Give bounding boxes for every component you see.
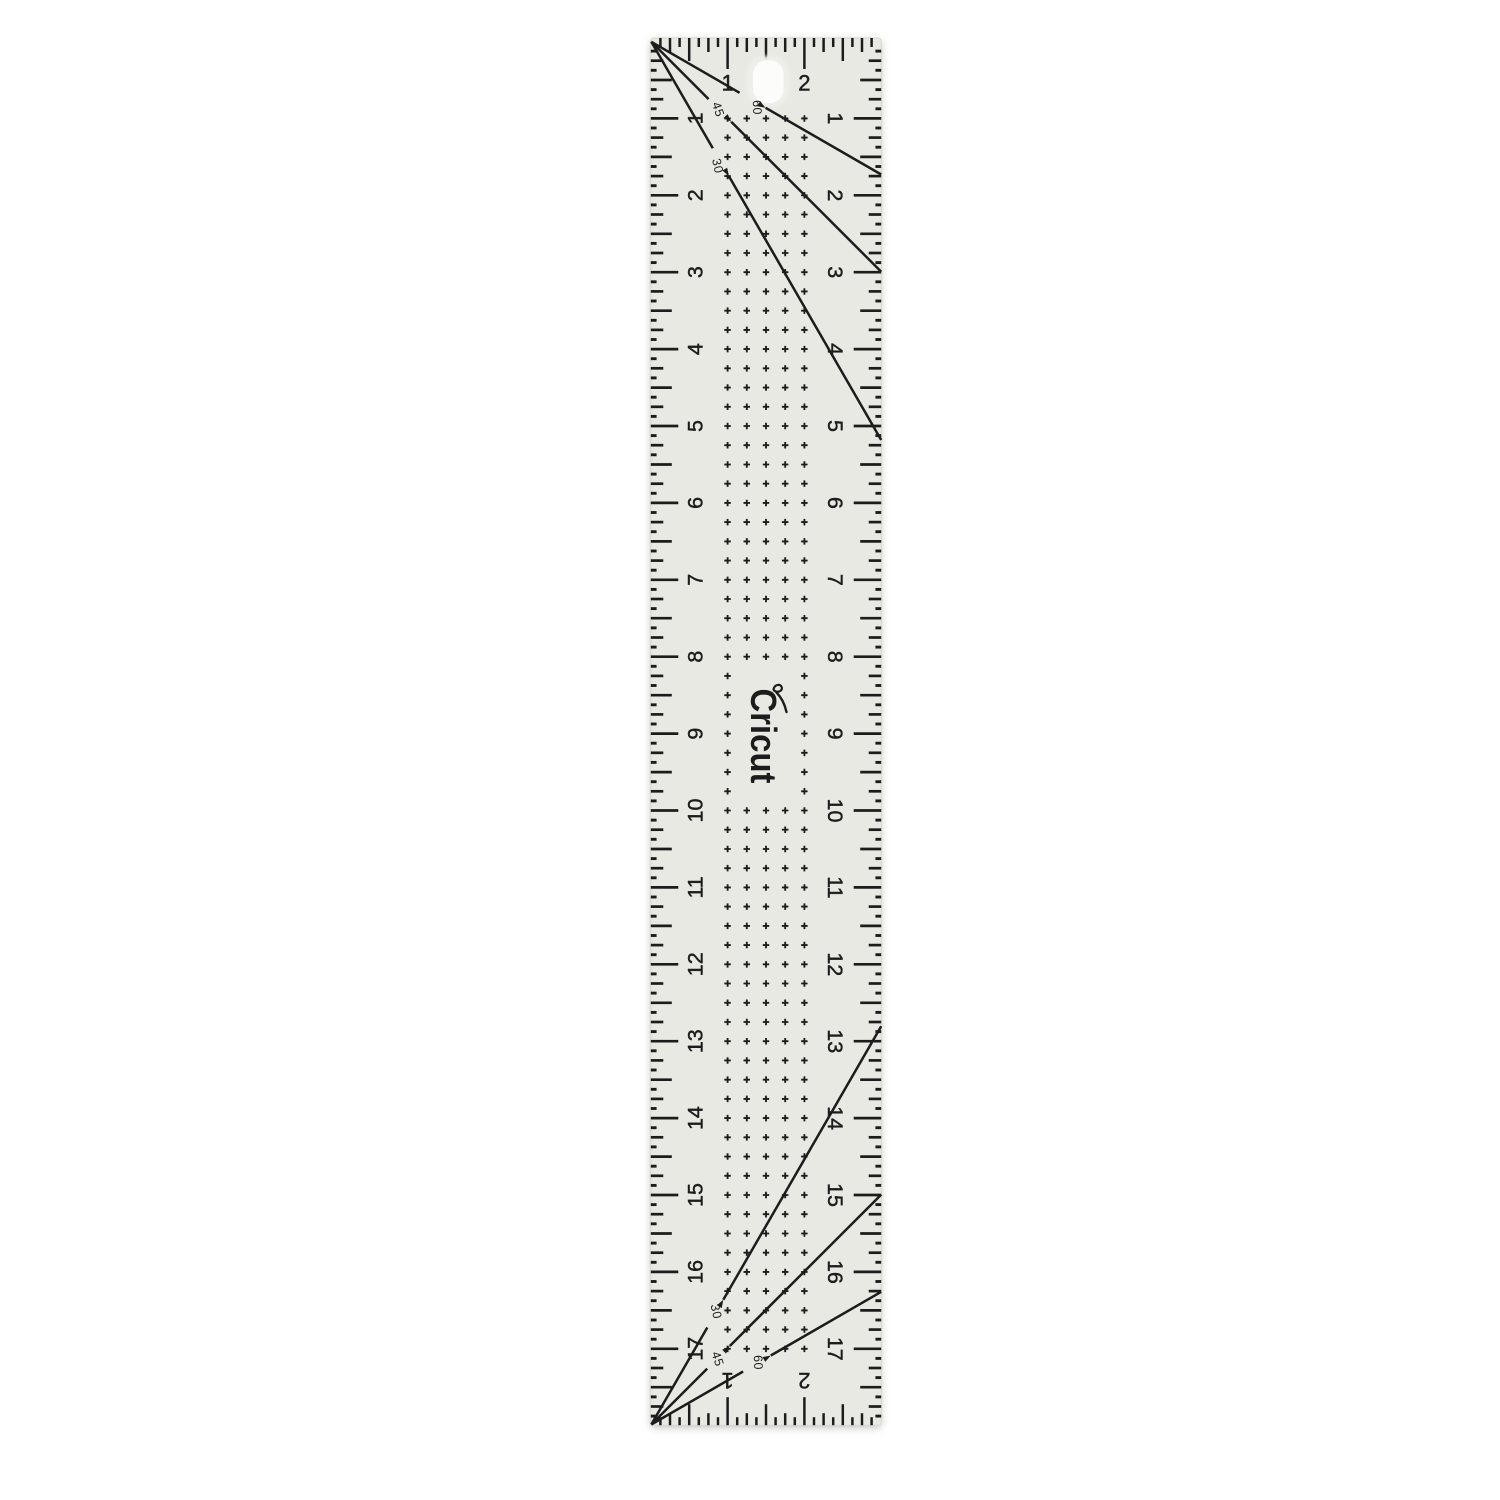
- svg-text:1: 1: [721, 71, 733, 96]
- svg-text:5: 5: [684, 420, 708, 432]
- svg-text:7: 7: [823, 574, 847, 586]
- svg-text:9: 9: [823, 728, 847, 740]
- svg-text:4: 4: [684, 343, 708, 355]
- svg-text:14: 14: [684, 1106, 708, 1130]
- svg-text:5: 5: [823, 420, 847, 432]
- svg-text:17: 17: [823, 1337, 847, 1361]
- svg-text:10: 10: [823, 799, 847, 823]
- svg-text:13: 13: [684, 1029, 708, 1053]
- svg-text:12: 12: [684, 952, 708, 976]
- svg-text:16: 16: [823, 1260, 847, 1284]
- svg-text:4: 4: [823, 343, 847, 355]
- svg-text:2: 2: [823, 189, 847, 201]
- svg-text:2: 2: [798, 71, 810, 96]
- svg-text:2: 2: [798, 1368, 810, 1393]
- svg-text:15: 15: [823, 1183, 847, 1207]
- svg-text:60: 60: [751, 1355, 766, 1370]
- svg-text:7: 7: [684, 574, 708, 586]
- svg-text:11: 11: [823, 876, 847, 898]
- svg-text:2: 2: [684, 189, 708, 201]
- svg-text:8: 8: [684, 651, 708, 663]
- svg-text:6: 6: [823, 497, 847, 509]
- svg-text:15: 15: [684, 1183, 708, 1207]
- svg-text:16: 16: [684, 1260, 708, 1284]
- svg-text:8: 8: [823, 651, 847, 663]
- svg-text:1: 1: [721, 1368, 733, 1393]
- svg-text:3: 3: [684, 266, 708, 278]
- svg-text:3: 3: [823, 266, 847, 278]
- svg-text:14: 14: [823, 1106, 847, 1130]
- svg-text:Cricut: Cricut: [743, 689, 784, 784]
- svg-text:60: 60: [750, 100, 765, 115]
- svg-text:11: 11: [684, 876, 708, 898]
- svg-text:12: 12: [823, 952, 847, 976]
- svg-text:1: 1: [823, 112, 847, 124]
- svg-text:6: 6: [684, 497, 708, 509]
- svg-text:9: 9: [684, 728, 708, 740]
- svg-text:17: 17: [684, 1337, 708, 1361]
- svg-text:13: 13: [823, 1029, 847, 1053]
- svg-text:10: 10: [684, 799, 708, 823]
- svg-text:1: 1: [684, 112, 708, 124]
